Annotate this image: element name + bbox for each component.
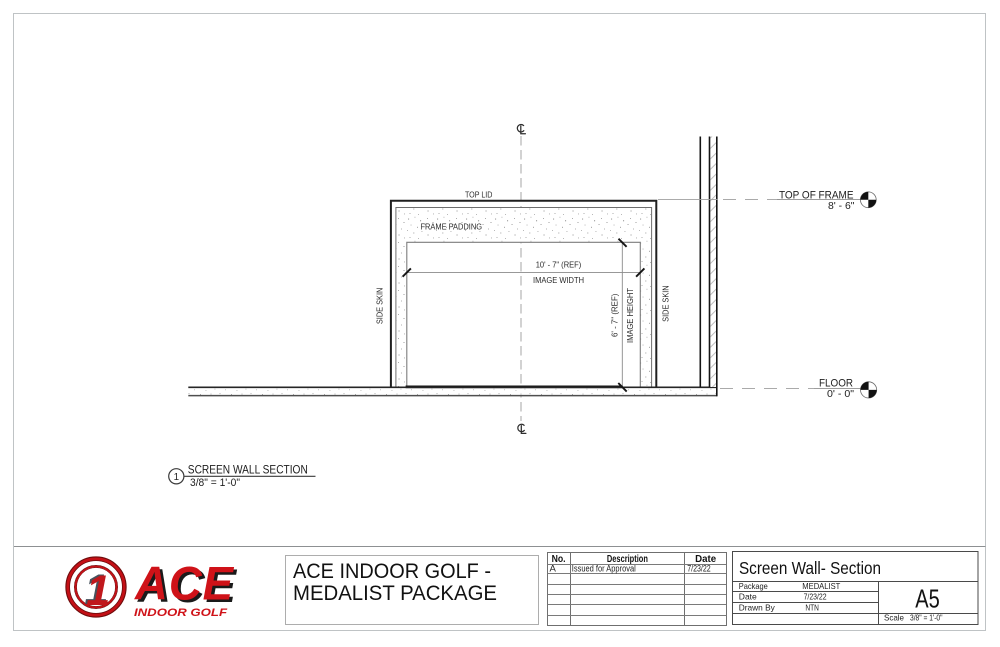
svg-text:ACE: ACE <box>134 557 235 610</box>
svg-text:SIDE SKIN: SIDE SKIN <box>661 285 670 322</box>
svg-text:7/23/22: 7/23/22 <box>804 592 827 602</box>
svg-text:3/8" = 1'-0": 3/8" = 1'-0" <box>910 613 943 623</box>
svg-text:SIDE SKIN: SIDE SKIN <box>376 288 385 325</box>
svg-text:IMAGE WIDTH: IMAGE WIDTH <box>533 275 584 285</box>
svg-text:MEDALIST: MEDALIST <box>802 581 840 591</box>
svg-text:FLOOR: FLOOR <box>819 378 853 390</box>
svg-text:3/8" = 1'-0": 3/8" = 1'-0" <box>190 477 240 489</box>
svg-text:1: 1 <box>174 472 179 483</box>
svg-text:IMAGE HEIGHT: IMAGE HEIGHT <box>625 288 635 343</box>
svg-text:TOP LID: TOP LID <box>465 189 493 199</box>
svg-text:FRAME PADDING: FRAME PADDING <box>421 221 483 231</box>
svg-text:TOP OF FRAME: TOP OF FRAME <box>779 189 854 201</box>
svg-text:Scale: Scale <box>884 613 904 623</box>
svg-text:Date: Date <box>739 592 757 602</box>
svg-text:7/23/22: 7/23/22 <box>687 564 711 575</box>
svg-text:Issued for Approval: Issued for Approval <box>572 564 636 575</box>
svg-text:MEDALIST PACKAGE: MEDALIST PACKAGE <box>293 580 497 605</box>
svg-text:INDOOR GOLF: INDOOR GOLF <box>134 607 227 619</box>
svg-text:10' - 7" (REF): 10' - 7" (REF) <box>536 260 582 269</box>
svg-text:6' - 7" (REF): 6' - 7" (REF) <box>610 293 619 337</box>
svg-text:SCREEN WALL SECTION: SCREEN WALL SECTION <box>188 462 308 476</box>
svg-text:8' - 6": 8' - 6" <box>828 201 855 212</box>
svg-text:0' - 0": 0' - 0" <box>827 389 854 400</box>
svg-text:Package: Package <box>739 581 768 591</box>
svg-text:A: A <box>550 564 557 575</box>
svg-text:A5: A5 <box>915 586 940 614</box>
svg-text:Drawn By: Drawn By <box>739 602 776 612</box>
svg-text:Screen Wall- Section: Screen Wall- Section <box>739 558 881 578</box>
svg-text:1: 1 <box>86 567 110 615</box>
svg-text:NTN: NTN <box>805 602 819 612</box>
